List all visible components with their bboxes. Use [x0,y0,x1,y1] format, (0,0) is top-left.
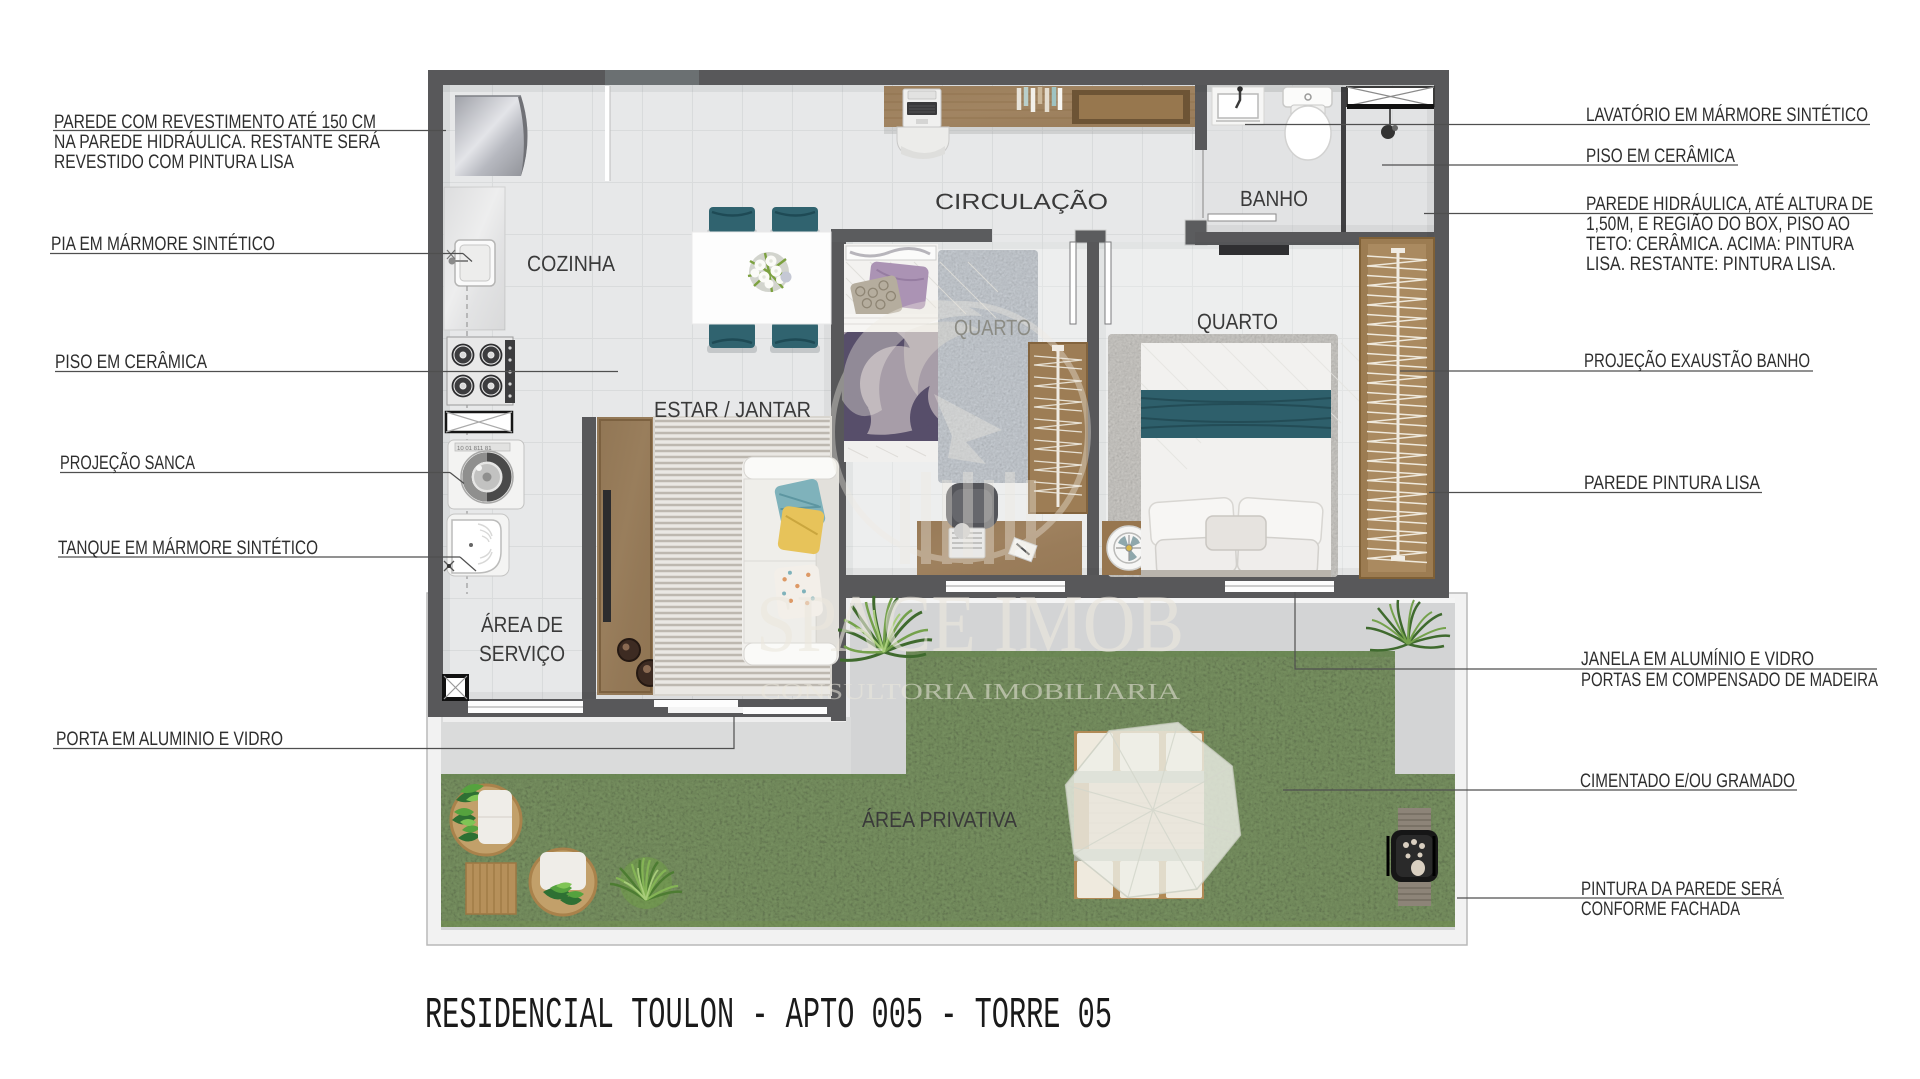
svg-text:TANQUE EM MÁRMORE SINTÉTICO: TANQUE EM MÁRMORE SINTÉTICO [58,537,318,559]
svg-text:PISO EM CERÂMICA: PISO EM CERÂMICA [1586,144,1735,167]
svg-text:ÁREA PRIVATIVA: ÁREA PRIVATIVA [862,807,1017,832]
svg-text:QUARTO: QUARTO [1197,309,1278,334]
svg-text:COZINHA: COZINHA [527,251,615,276]
svg-text:ESTAR / JANTAR: ESTAR / JANTAR [654,397,811,422]
svg-text:TETO: CERÂMICA. ACIMA: PINTURA: TETO: CERÂMICA. ACIMA: PINTURA [1586,232,1854,255]
svg-text:RESIDENCIAL TOULON - APTO 005: RESIDENCIAL TOULON - APTO 005 - TORRE 05 [425,991,1112,1041]
svg-text:PAREDE COM REVESTIMENTO ATÉ 15: PAREDE COM REVESTIMENTO ATÉ 150 CM [54,111,376,133]
svg-text:CIMENTADO E/OU GRAMADO: CIMENTADO E/OU GRAMADO [1580,770,1795,792]
svg-text:SPACE IMOB: SPACE IMOB [756,578,1184,669]
svg-text:CIRCULAÇÃO: CIRCULAÇÃO [935,189,1108,214]
svg-text:LISA. RESTANTE: PINTURA LISA.: LISA. RESTANTE: PINTURA LISA. [1586,253,1836,275]
svg-text:PISO EM CERÂMICA: PISO EM CERÂMICA [55,350,207,373]
svg-text:PAREDE PINTURA LISA: PAREDE PINTURA LISA [1584,472,1760,494]
svg-text:PROJEÇÃO SANCA: PROJEÇÃO SANCA [60,451,195,474]
svg-text:PINTURA DA PAREDE SERÁ: PINTURA DA PAREDE SERÁ [1581,878,1782,900]
svg-text:NA PAREDE HIDRÁULICA. RESTANTE: NA PAREDE HIDRÁULICA. RESTANTE SERÁ [54,131,380,153]
svg-text:PORTAS EM COMPENSADO DE MADEIR: PORTAS EM COMPENSADO DE MADEIRA [1581,669,1878,691]
svg-text:LAVATÓRIO EM MÁRMORE SINTÉTICO: LAVATÓRIO EM MÁRMORE SINTÉTICO [1586,104,1868,126]
svg-text:PAREDE HIDRÁULICA, ATÉ ALTURA: PAREDE HIDRÁULICA, ATÉ ALTURA DE [1586,193,1873,215]
svg-text:CONFORME FACHADA: CONFORME FACHADA [1581,898,1740,920]
svg-text:PROJEÇÃO EXAUSTÃO BANHO: PROJEÇÃO EXAUSTÃO BANHO [1584,349,1810,372]
svg-text:REVESTIDO COM PINTURA LISA: REVESTIDO COM PINTURA LISA [54,151,294,173]
svg-text:JANELA EM ALUMÍNIO E VIDRO: JANELA EM ALUMÍNIO E VIDRO [1581,648,1814,670]
svg-text:PORTA EM ALUMINIO E VIDRO: PORTA EM ALUMINIO E VIDRO [56,728,283,750]
svg-text:1,50M, E REGIÃO DO BOX, PISO A: 1,50M, E REGIÃO DO BOX, PISO AO [1586,212,1850,235]
svg-text:CONSULTORIA IMOBILIARIA: CONSULTORIA IMOBILIARIA [760,679,1181,704]
svg-text:SERVIÇO: SERVIÇO [479,641,565,666]
svg-text:ÁREA DE: ÁREA DE [481,612,563,637]
svg-text:QUARTO: QUARTO [954,315,1031,340]
svg-text:PIA EM MÁRMORE SINTÉTICO: PIA EM MÁRMORE SINTÉTICO [51,233,275,255]
svg-text:BANHO: BANHO [1240,186,1308,211]
